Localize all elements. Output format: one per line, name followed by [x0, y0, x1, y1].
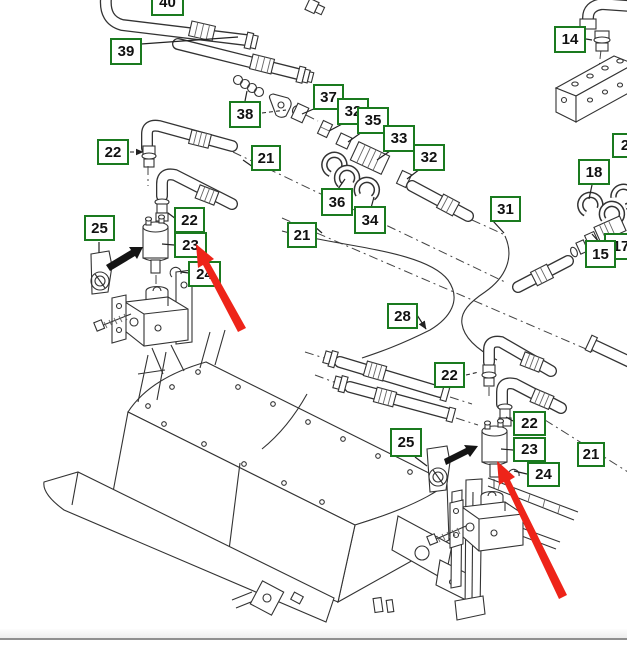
fitting-22-left-upper [142, 146, 156, 167]
callout-23[interactable]: 23 [174, 232, 207, 258]
bracket-25-left [91, 251, 112, 294]
spring-38 [234, 76, 264, 97]
callout-38[interactable]: 38 [229, 101, 261, 128]
callout-21[interactable]: 21 [251, 145, 281, 171]
callout-34[interactable]: 34 [354, 206, 386, 234]
bottom-divider [0, 629, 627, 640]
right-mid-chain [518, 183, 627, 362]
callout-21[interactable]: 21 [287, 222, 317, 248]
manifold-assembly [556, 4, 627, 122]
callout-24[interactable]: 24 [188, 261, 221, 287]
callout-25[interactable]: 25 [390, 428, 422, 457]
callout-32[interactable]: 32 [413, 144, 445, 171]
accumulator-right [482, 419, 507, 477]
callout-22[interactable]: 22 [97, 139, 129, 165]
callout-33[interactable]: 33 [383, 125, 415, 152]
callout-22[interactable]: 22 [174, 207, 205, 233]
callout-2[interactable]: 2 [612, 133, 627, 158]
clip-24-right [508, 469, 519, 479]
callout-23[interactable]: 23 [513, 437, 546, 462]
callout-22[interactable]: 22 [513, 411, 546, 436]
callout-18[interactable]: 18 [578, 159, 610, 185]
callout-22[interactable]: 22 [434, 362, 465, 388]
black-arrow-left [106, 247, 143, 271]
callout-36[interactable]: 36 [321, 188, 353, 216]
fitting-14 [594, 31, 610, 51]
callout-39[interactable]: 39 [110, 38, 142, 65]
callout-31[interactable]: 31 [490, 196, 521, 222]
parts-diagram-page: 4039381422212137323533323634311821715282… [0, 0, 627, 653]
valve-left [94, 287, 188, 375]
bracket-25-right [427, 446, 450, 492]
callout-25[interactable]: 25 [84, 215, 115, 241]
callout-21[interactable]: 21 [577, 442, 605, 467]
fitting-22-right-upper [482, 365, 496, 386]
mower-deck [44, 330, 470, 622]
callout-40[interactable]: 40 [151, 0, 184, 16]
callout-24[interactable]: 24 [527, 462, 560, 487]
callout-15[interactable]: 15 [585, 240, 616, 268]
callout-28[interactable]: 28 [387, 303, 418, 329]
callout-14[interactable]: 14 [554, 26, 586, 53]
